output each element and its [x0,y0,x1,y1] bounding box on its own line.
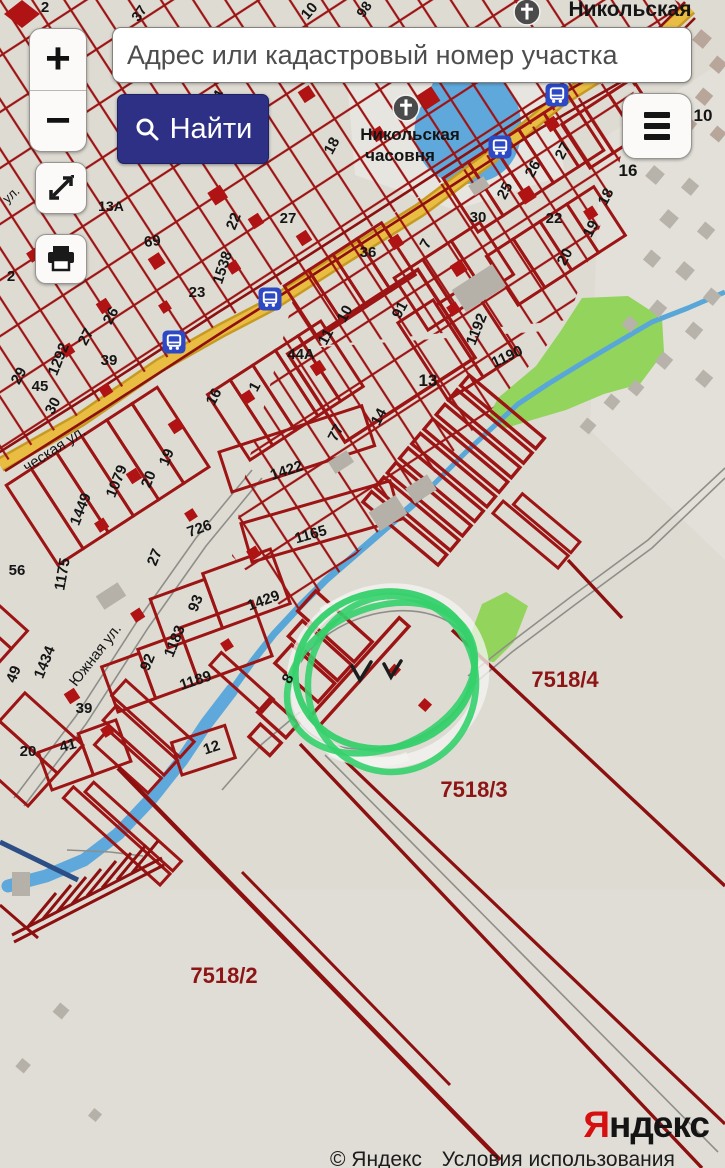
map-label: 30 [470,209,487,226]
map-label: 69 [143,232,162,251]
printer-icon [46,245,76,273]
map-label: 2 [41,0,49,16]
expand-arrows-icon [45,172,77,204]
map-label: 7518/4 [531,667,599,692]
print-button[interactable] [35,234,87,284]
map-label: часовня [365,146,435,165]
search-icon [134,116,160,142]
hamburger-icon [644,112,670,118]
copyright-text: © Яндекс [330,1148,422,1168]
map-label: 20 [20,743,37,760]
zoom-control: + − [29,28,87,152]
find-button-label: Найти [170,113,253,146]
cadastral-map-app: 2371098НикольскаяНикольскаячасовняул.941… [0,0,725,1168]
chapel-icon [393,95,419,121]
map-label: 23 [189,284,206,301]
map-label: 56 [9,562,26,579]
map-label: 16 [619,161,638,180]
map-label: 45 [32,378,49,395]
yandex-logo-ya: Я [583,1104,609,1145]
map-canvas[interactable]: 2371098НикольскаяНикольскаячасовняул.941… [0,0,725,1168]
bus-stop-icon [546,84,569,107]
search-input[interactable] [112,27,692,83]
map-label: 7518/3 [440,777,507,802]
map-label: 44А [287,346,315,363]
chapel-icon [514,0,540,25]
bus-stop-icon [489,136,512,159]
fullscreen-button[interactable] [35,162,87,214]
menu-button[interactable] [622,93,692,159]
terms-link[interactable]: Условия использования [442,1148,675,1168]
yandex-logo: Яндекс [583,1104,709,1146]
bus-stop-icon [163,331,186,354]
map-label: 22 [546,210,563,227]
map-label: Никольская [360,125,460,144]
map-label: 39 [101,352,118,369]
bus-stop-icon [259,288,282,311]
map-label: 13А [98,198,124,214]
map-label: 27 [280,210,297,227]
zoom-in-button[interactable]: + [30,29,86,90]
map-label: 13 [419,371,438,390]
map-label: 39 [76,700,93,717]
map-label: 36 [360,244,377,261]
map-label: 2 [7,268,15,285]
zoom-out-button[interactable]: − [30,90,86,151]
yandex-logo-rest: ндекс [609,1104,709,1145]
map-label: 7518/2 [190,963,257,988]
attribution-line: © Яндекс Условия использования [330,1148,689,1168]
find-button[interactable]: Найти [117,94,269,164]
map-label: 10 [694,106,713,125]
map-label: Никольская [569,0,692,21]
